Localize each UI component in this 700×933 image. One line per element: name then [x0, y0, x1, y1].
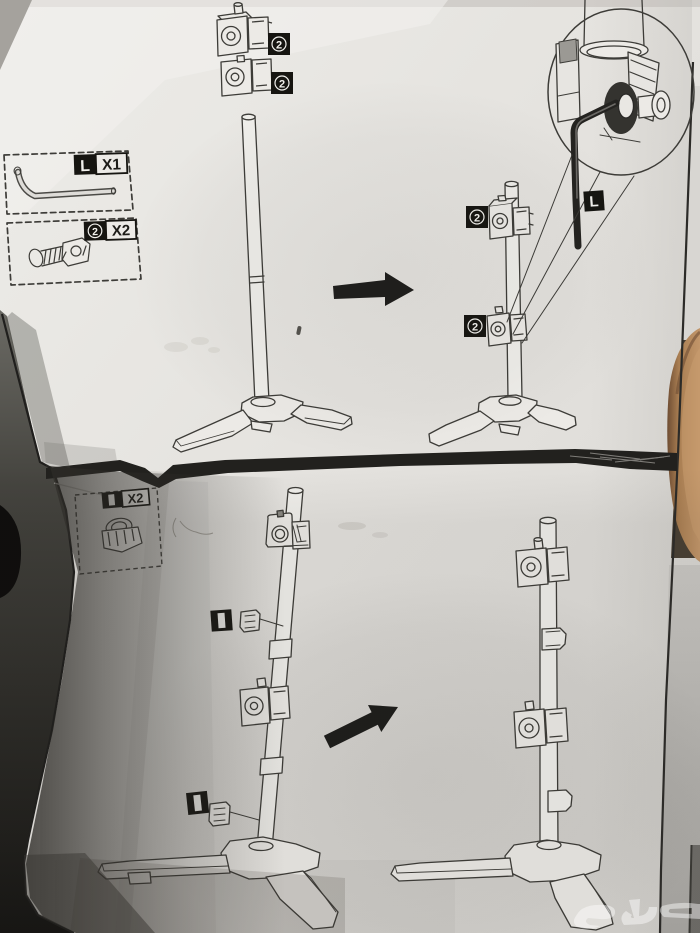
svg-text:L: L — [80, 158, 91, 175]
svg-text:2: 2 — [92, 226, 98, 238]
svg-text:2: 2 — [276, 40, 282, 52]
svg-text:X2: X2 — [112, 222, 131, 240]
svg-text:X1: X1 — [102, 156, 122, 174]
svg-text:2: 2 — [279, 79, 285, 91]
